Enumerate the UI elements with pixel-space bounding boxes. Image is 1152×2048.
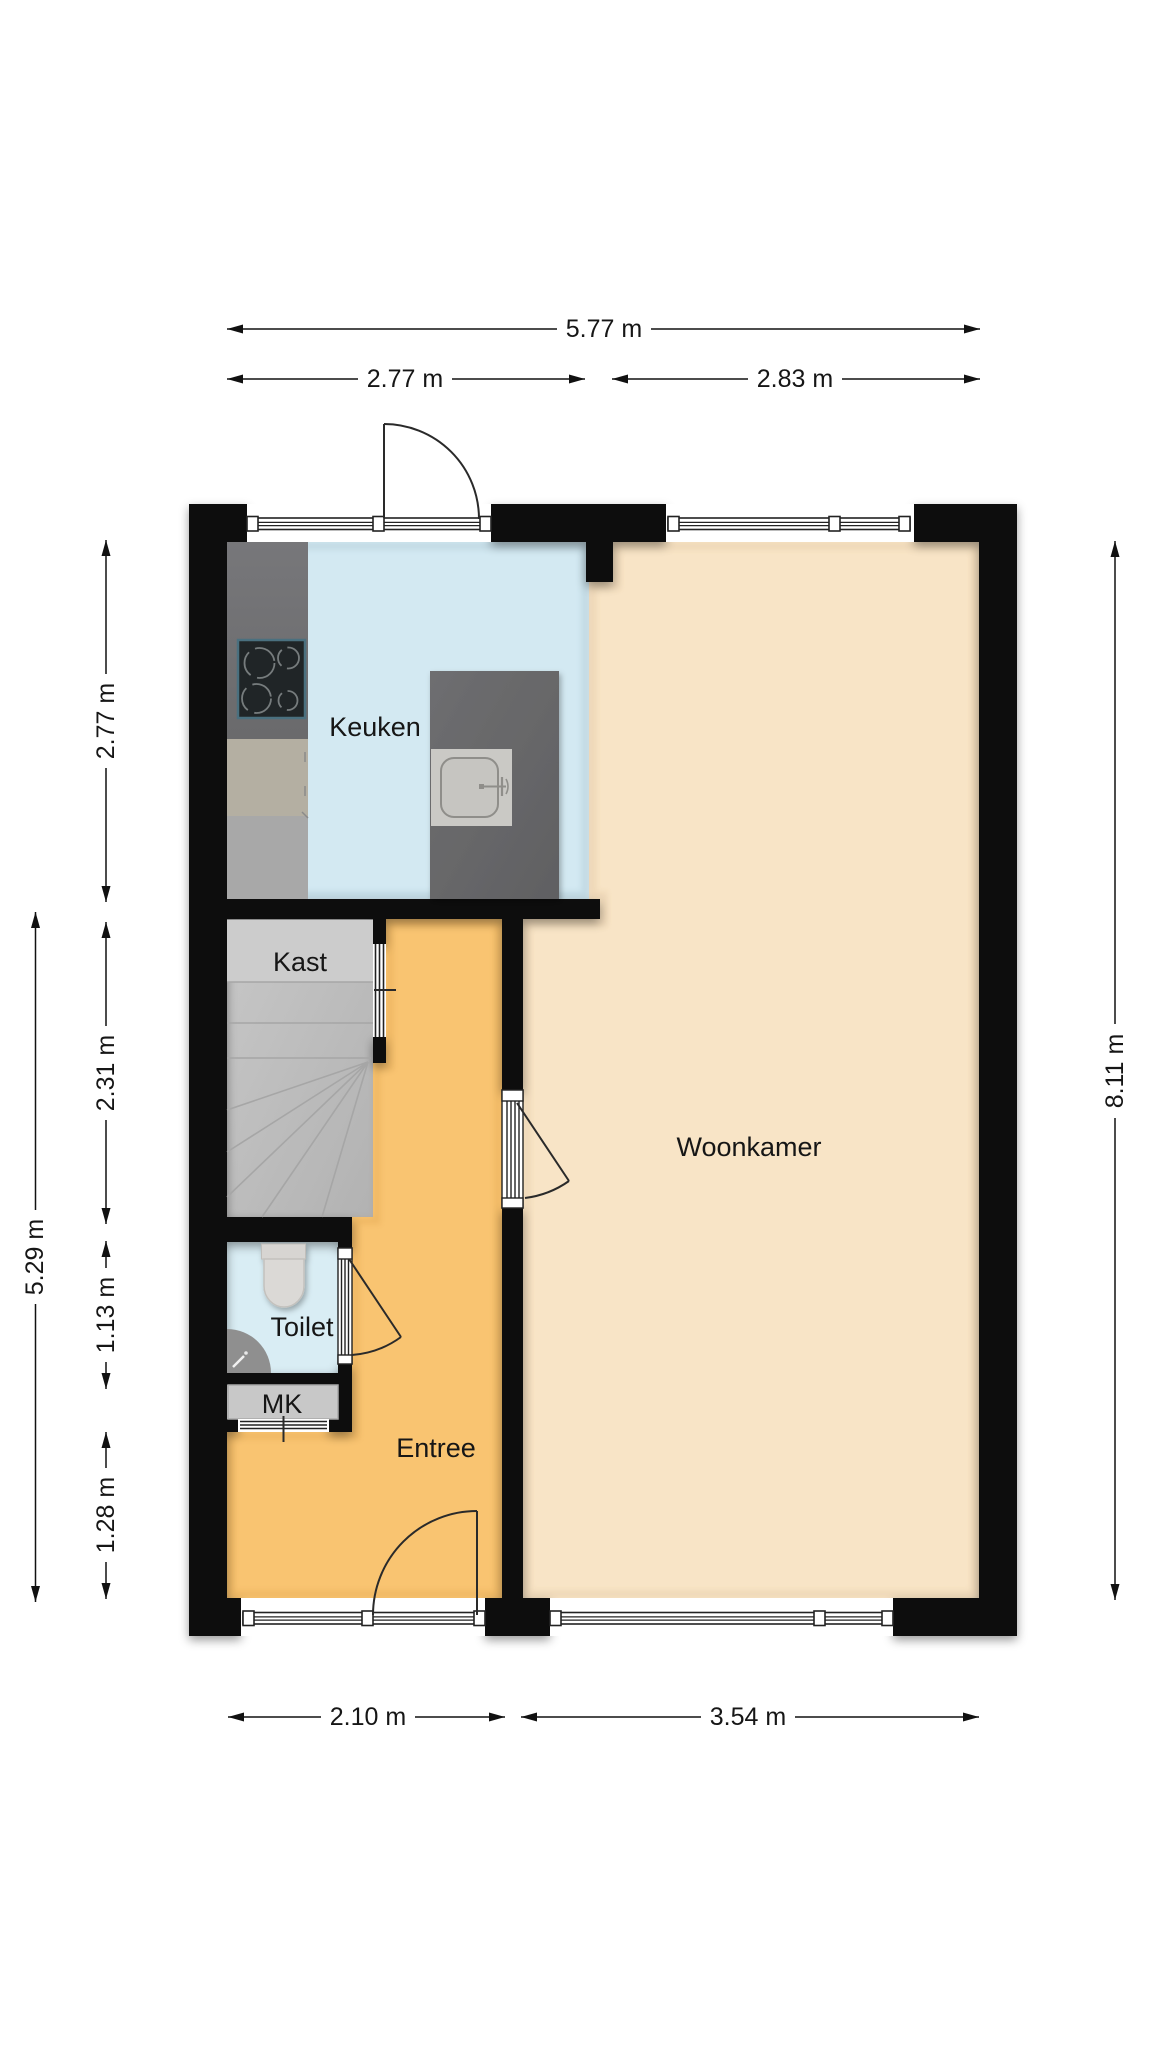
svg-text:2.10 m: 2.10 m (330, 1703, 406, 1731)
svg-text:Toilet: Toilet (270, 1312, 334, 1342)
svg-text:1.28 m: 1.28 m (92, 1477, 120, 1553)
svg-text:Kast: Kast (273, 947, 328, 977)
svg-text:5.77 m: 5.77 m (566, 315, 642, 343)
svg-text:2.31 m: 2.31 m (92, 1035, 120, 1111)
svg-text:5.29 m: 5.29 m (21, 1219, 49, 1295)
svg-text:8.11 m: 8.11 m (1101, 1034, 1129, 1109)
svg-text:Woonkamer: Woonkamer (676, 1132, 821, 1162)
svg-text:2.77 m: 2.77 m (92, 683, 120, 759)
svg-text:2.83 m: 2.83 m (757, 365, 833, 393)
svg-text:Keuken: Keuken (329, 712, 421, 742)
svg-text:MK: MK (262, 1389, 303, 1419)
svg-text:Entree: Entree (396, 1433, 476, 1463)
svg-text:1.13 m: 1.13 m (92, 1277, 120, 1353)
svg-text:2.77 m: 2.77 m (367, 365, 443, 393)
svg-text:3.54 m: 3.54 m (710, 1703, 786, 1731)
